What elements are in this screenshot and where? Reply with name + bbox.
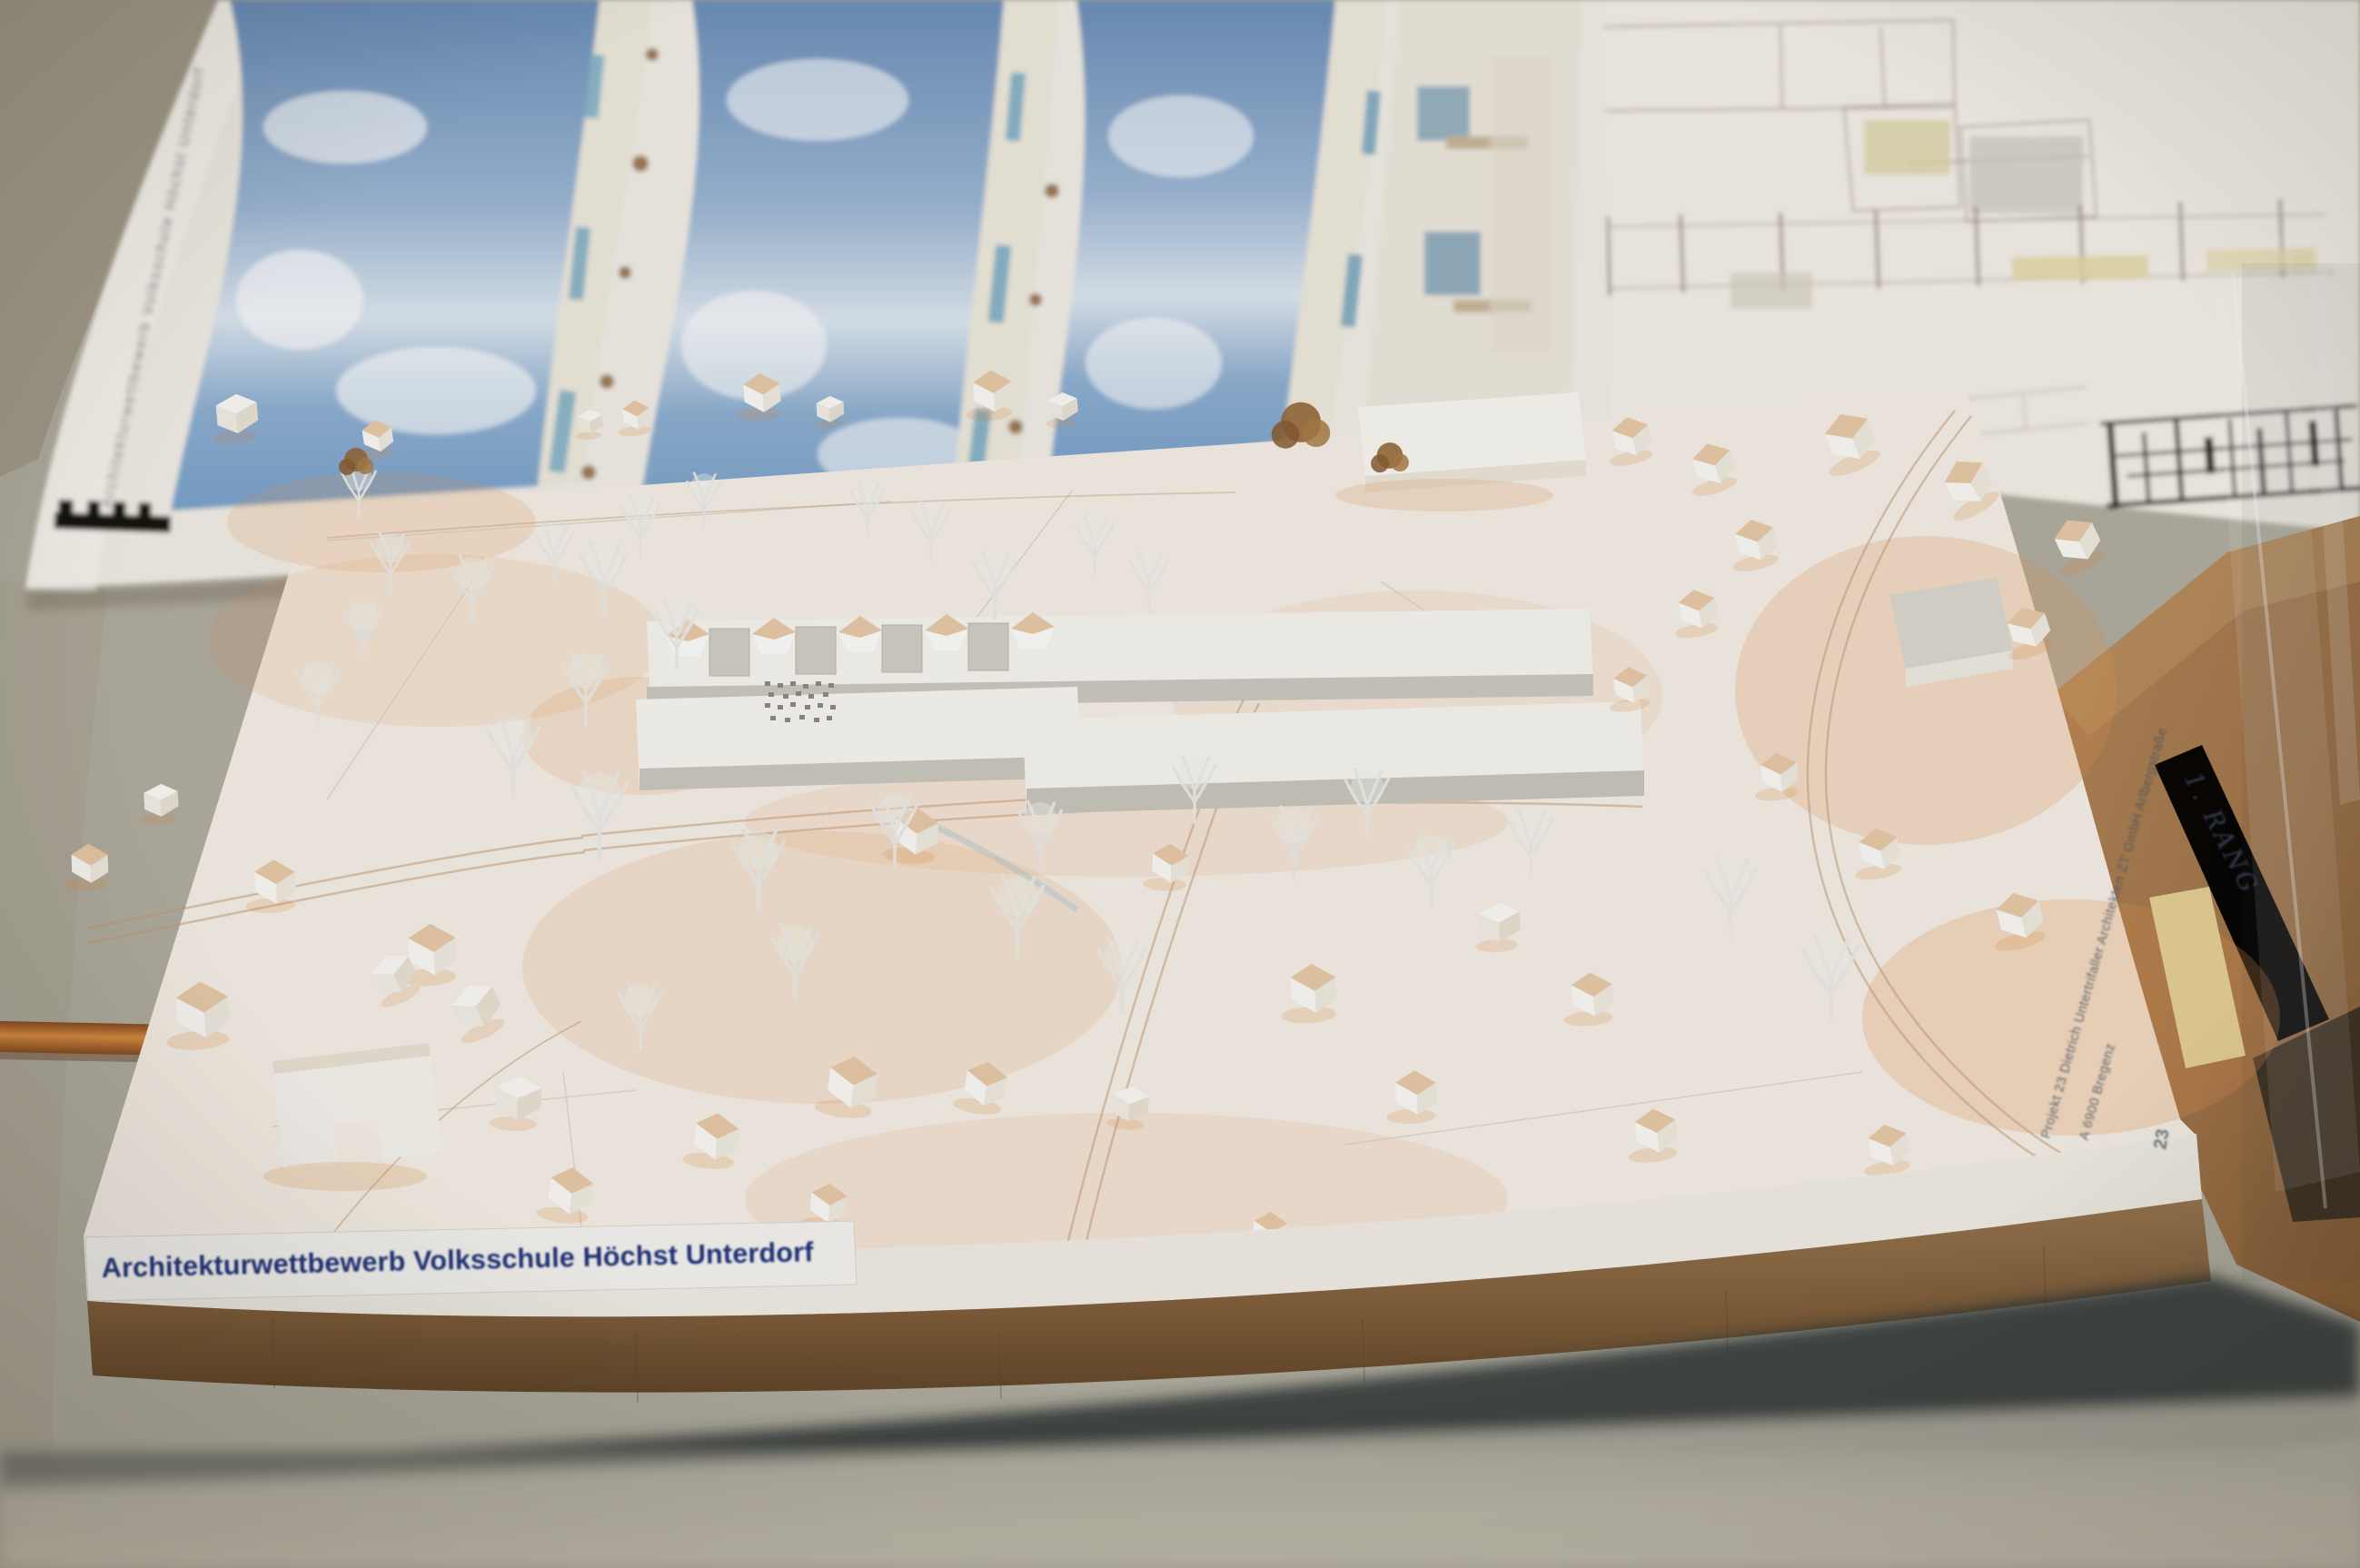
photo-architecture-model: Architekturwettbewerb Volksschule Höchst… (0, 0, 2360, 1568)
